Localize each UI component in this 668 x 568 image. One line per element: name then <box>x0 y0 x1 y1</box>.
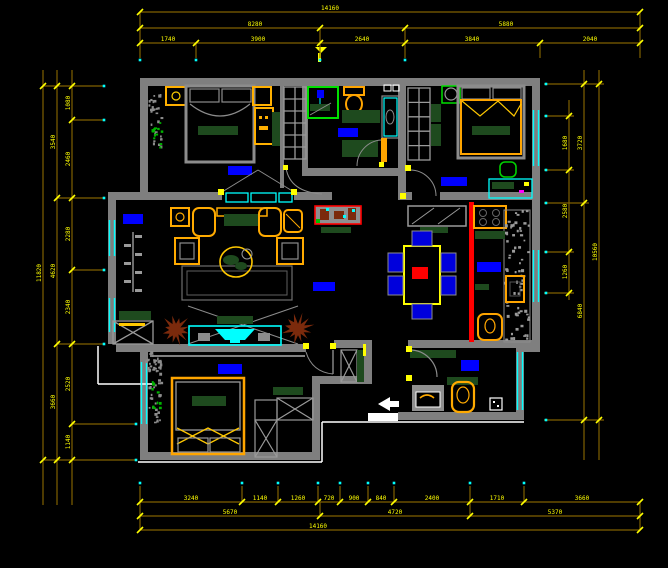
kitchen-counter <box>517 230 519 233</box>
armchair-line <box>286 214 300 228</box>
kitchen-counter <box>512 250 515 253</box>
wall-decor <box>148 104 150 106</box>
label-bedroom1 <box>228 166 252 175</box>
sideboard-line <box>438 208 460 224</box>
dim-dot <box>545 169 548 172</box>
label-bedroom2 <box>441 177 467 186</box>
kitchen-counter <box>522 210 524 213</box>
dim-text: 3720 <box>577 135 584 150</box>
kitchen-counter <box>506 232 508 235</box>
plant-decor <box>157 128 160 130</box>
dim-text: 5670 <box>223 509 238 516</box>
cabinet-green <box>431 124 441 146</box>
column <box>148 359 150 361</box>
wall-decor <box>149 100 151 103</box>
vanity-counter <box>342 110 380 123</box>
soundbar <box>217 316 253 324</box>
dim-dot <box>103 343 106 346</box>
desk-item-magenta <box>519 190 524 193</box>
wall-hall-bottom <box>334 340 372 348</box>
wall-decor <box>160 135 162 137</box>
kitchen-counter <box>523 335 526 337</box>
sideboard <box>279 193 292 202</box>
dim-text: 2280 <box>65 226 72 241</box>
headboard-panel <box>222 89 251 102</box>
dim-text: 3540 <box>50 134 57 149</box>
kitchen-counter <box>526 314 528 316</box>
door-hinge <box>218 189 224 195</box>
side-table-top <box>180 243 194 259</box>
wall-decor <box>158 360 161 363</box>
door-hinge <box>406 375 412 381</box>
dim-text: 5370 <box>548 509 563 516</box>
wall-decor <box>152 109 154 111</box>
column <box>150 365 152 367</box>
appliance-dial <box>485 319 495 333</box>
dim-dot <box>139 482 142 485</box>
wall-decor <box>158 107 160 109</box>
wall-decor <box>160 117 163 119</box>
dim-dot <box>545 419 548 422</box>
dining-chair <box>412 304 432 319</box>
plant-decor <box>159 407 162 409</box>
dim-text: 1680 <box>562 135 569 150</box>
headboard-panel <box>462 88 490 99</box>
door-hinge <box>330 343 336 349</box>
dim-text: 2040 <box>583 36 598 43</box>
wardrobe-box <box>255 400 277 420</box>
bed2 <box>458 86 524 158</box>
wall-decor <box>158 394 161 397</box>
dim-dot <box>103 119 106 122</box>
dim-text: 14160 <box>321 5 339 12</box>
toilet-tank <box>344 87 364 95</box>
door-hinge <box>379 162 384 167</box>
kitchen-counter <box>523 222 526 224</box>
plant-decor <box>159 146 161 148</box>
dim-dot <box>135 459 138 462</box>
label-bathroom <box>338 128 358 137</box>
dining-chair <box>388 276 403 295</box>
dim-text: 2460 <box>65 151 72 166</box>
plant <box>282 313 314 344</box>
burner <box>480 219 487 226</box>
wall-decor <box>156 416 159 418</box>
dim-dot <box>523 482 526 485</box>
column <box>152 369 155 371</box>
dim-text: 1740 <box>161 36 176 43</box>
wall-decor <box>159 373 162 376</box>
cad-floor-plan: 1416082805880174039002640384020403240114… <box>0 0 668 568</box>
wall-decor <box>155 402 157 404</box>
speaker <box>258 333 270 341</box>
door-leaf <box>381 138 387 162</box>
door-swing <box>258 170 294 192</box>
kitchen-counter <box>518 312 521 314</box>
dim-text: 4620 <box>50 263 57 278</box>
kitchen-counter <box>525 310 527 312</box>
drain-dot <box>497 405 499 407</box>
kitchen-counter <box>526 334 528 337</box>
dim-dot <box>545 251 548 254</box>
kitchen-counter <box>526 337 528 339</box>
plant-decor <box>154 134 156 136</box>
drain-dot <box>493 401 495 403</box>
dining-chair <box>441 276 456 295</box>
dim-dot <box>545 202 548 205</box>
column <box>155 363 157 365</box>
wall-decor <box>156 108 158 110</box>
wall-decor <box>150 386 152 389</box>
dim-dot <box>545 292 548 295</box>
dining-chair <box>441 253 456 272</box>
sofa-scroll <box>176 213 184 221</box>
cabinet-dot <box>352 209 355 212</box>
dim-text: 8280 <box>248 21 263 28</box>
dim-dot <box>317 482 320 485</box>
label-kitchen <box>477 262 501 272</box>
cabinet-dot <box>326 208 329 211</box>
kitchen-counter <box>516 328 519 331</box>
dresser-knob <box>259 126 268 130</box>
dim-dot <box>319 59 322 62</box>
wall-bed2-bottom <box>440 192 540 200</box>
wall-decor <box>153 142 155 145</box>
kitchen-counter <box>505 225 508 227</box>
side-table <box>277 238 303 264</box>
wall-decor <box>158 94 161 97</box>
kitchen-counter <box>505 339 508 341</box>
wall-tree-decor <box>124 262 131 265</box>
chair-cushion <box>457 387 469 403</box>
column <box>152 355 154 357</box>
label-hall <box>313 282 335 291</box>
burner <box>493 219 500 226</box>
basin <box>386 110 394 124</box>
column <box>149 353 152 355</box>
wall-decor <box>153 95 155 97</box>
dim-text: 5880 <box>499 21 514 28</box>
door-arc <box>306 352 333 374</box>
dim-text: 3660 <box>50 394 57 409</box>
wall-decor <box>153 361 155 363</box>
kitchen-counter <box>513 224 515 227</box>
sofa-arm <box>193 208 215 236</box>
dim-dot <box>545 83 548 86</box>
wall-entry-bottom <box>398 412 524 420</box>
dim-dot <box>103 197 106 200</box>
wall-decor <box>159 419 161 421</box>
door-hinge <box>291 189 297 195</box>
dim-dot <box>277 482 280 485</box>
dim-dot <box>241 482 244 485</box>
kitchen-counter <box>518 270 520 272</box>
sofa-cushions <box>224 214 260 226</box>
lamp <box>172 92 180 100</box>
kitchen-counter <box>527 318 530 320</box>
dim-text: 840 <box>376 495 387 502</box>
plant-decor <box>157 402 159 405</box>
dining-chair <box>412 231 432 246</box>
bed1 <box>186 86 254 162</box>
dim-text: 3900 <box>251 36 266 43</box>
column <box>149 363 151 365</box>
wall-decor <box>157 411 160 414</box>
kitchen-counter <box>510 337 513 340</box>
entrance-arrow <box>378 397 399 411</box>
wall-tree-decor <box>135 235 142 238</box>
column <box>153 367 155 369</box>
wall-tree-decor <box>135 271 142 274</box>
plant-decor <box>161 130 164 132</box>
wall-decor <box>150 397 152 399</box>
dining-chair <box>388 253 403 272</box>
closet-green <box>357 350 364 382</box>
wall-decor <box>153 140 155 142</box>
wall-tree-decor <box>135 253 142 256</box>
kitchen-counter <box>513 292 515 295</box>
dining-sideboard <box>408 206 466 226</box>
table-mat <box>412 267 428 279</box>
wall-living-top-left <box>140 192 222 200</box>
kitchen-counter <box>517 214 520 216</box>
pillow <box>472 126 510 135</box>
dim-text: 2640 <box>355 36 370 43</box>
wall-decor <box>149 407 151 409</box>
wall-tree-decor <box>124 244 131 247</box>
label-entry <box>461 360 479 371</box>
dim-text: 1260 <box>291 495 306 502</box>
speaker <box>198 333 210 341</box>
blanket <box>198 126 238 135</box>
column <box>147 367 150 370</box>
wall-decor <box>156 112 159 114</box>
cabinet-item <box>334 211 344 219</box>
door-hinge <box>400 193 406 199</box>
dim-text: 1140 <box>65 434 72 449</box>
door-hinge <box>283 165 288 170</box>
dim-dot <box>469 482 472 485</box>
dim-text: 1140 <box>253 495 268 502</box>
dim-text: 720 <box>324 495 335 502</box>
label-bedroom3 <box>218 364 242 374</box>
kitchen-counter <box>527 251 530 253</box>
kitchen-counter <box>507 315 510 318</box>
dim-text: 6840 <box>577 303 584 318</box>
cabinet-green <box>431 104 441 122</box>
dim-text: 3660 <box>575 495 590 502</box>
headboard-panel <box>190 89 219 102</box>
kitchen-counter <box>512 234 515 236</box>
kitchen-counter <box>509 255 511 257</box>
side-table-top <box>282 243 298 259</box>
sofa-arm <box>259 208 281 236</box>
wall-decor <box>151 124 153 126</box>
plant-decor <box>154 407 156 409</box>
nightstand <box>166 87 186 105</box>
wall-decor <box>154 413 157 416</box>
dim-text: 14160 <box>309 523 327 530</box>
wall-decor <box>158 382 161 384</box>
column <box>148 370 150 372</box>
dim-dot <box>139 59 142 62</box>
desk-chair <box>500 162 516 177</box>
plant-decor <box>159 402 162 405</box>
dim-dot <box>135 423 138 426</box>
kitchen-counter <box>519 227 521 230</box>
pillow-line <box>190 104 250 116</box>
dim-text: 2340 <box>65 299 72 314</box>
entrance-mat <box>368 413 398 421</box>
dim-dot <box>339 482 342 485</box>
kitchen-counter <box>516 314 519 316</box>
burner <box>480 210 487 217</box>
plant-decor <box>152 381 154 383</box>
appliance <box>478 314 502 340</box>
dim-dot <box>195 59 198 62</box>
floor-drain <box>490 398 502 410</box>
door-frame-mark <box>363 344 366 356</box>
dim-text: 11820 <box>36 264 43 282</box>
pillow <box>192 396 226 406</box>
rug-inner <box>187 271 287 295</box>
wall-bath-bottom <box>306 168 400 176</box>
column <box>145 360 147 363</box>
dim-text: 2520 <box>65 376 72 391</box>
dim-text: 1260 <box>562 264 569 279</box>
kitchen-counter <box>524 240 526 242</box>
dim-text: 2400 <box>425 495 440 502</box>
door-arc <box>410 170 436 196</box>
wall-decor <box>161 382 164 384</box>
door-hinge <box>303 343 309 349</box>
kitchen-counter <box>521 259 523 261</box>
dim-text: 1080 <box>65 95 72 110</box>
wall-decor <box>158 379 161 381</box>
wall-decor <box>160 367 162 370</box>
dim-dot <box>404 59 407 62</box>
dim-text: 3840 <box>465 36 480 43</box>
kitchen-counter <box>515 212 517 214</box>
kitchen-counter <box>518 246 521 249</box>
sideboard-line <box>412 208 434 224</box>
cabinet-dot <box>343 215 346 218</box>
bed-drawer <box>178 438 208 452</box>
kitchen-counter <box>515 271 517 273</box>
door-hinge <box>405 165 411 171</box>
kitchen-counter <box>506 305 509 307</box>
plant-decor <box>160 143 163 145</box>
door-hinge <box>406 346 412 352</box>
kitchen-counter <box>528 225 530 227</box>
wall-tree-decor <box>135 289 142 292</box>
kitchen-counter <box>506 269 509 272</box>
kitchen-counter <box>528 316 530 318</box>
column <box>157 358 159 361</box>
kitchen-counter <box>520 325 523 327</box>
dim-text: 10560 <box>592 243 599 261</box>
kitchen-counter <box>514 221 517 224</box>
cabinet-green <box>272 112 280 146</box>
plant-decor <box>152 129 154 132</box>
washer-trim <box>119 323 145 326</box>
tv-base <box>230 338 240 343</box>
level-marker <box>315 47 327 53</box>
kitchen-counter <box>508 257 510 259</box>
wall-decor <box>151 394 153 396</box>
kitchen-counter <box>508 221 511 223</box>
dim-dot <box>103 269 106 272</box>
plant-decor <box>151 388 153 391</box>
cabinet-dot <box>316 219 320 223</box>
kitchen-counter <box>511 333 513 335</box>
dim-text: 4720 <box>388 509 403 516</box>
plant-leaf <box>235 262 247 270</box>
plant-decor <box>153 137 155 139</box>
sideboard <box>226 193 248 202</box>
shower-head <box>317 90 324 98</box>
kitchen-counter <box>513 337 515 340</box>
plant <box>163 316 189 346</box>
dim-text: 3240 <box>184 495 199 502</box>
wall-decor <box>160 138 162 140</box>
dim-text: 2580 <box>562 203 569 218</box>
desk-item-green <box>492 182 514 189</box>
counter-green <box>475 231 505 239</box>
fan-motor <box>445 88 457 100</box>
wall-tree-decor <box>124 280 131 283</box>
burner <box>493 210 500 217</box>
dim-dot <box>393 482 396 485</box>
dresser-knob <box>259 116 262 119</box>
dim-dot <box>545 115 548 118</box>
plant-decor <box>159 122 161 124</box>
dim-text: 900 <box>349 495 360 502</box>
kitchen-counter <box>514 247 516 250</box>
dim-dot <box>367 482 370 485</box>
side-table <box>175 238 199 264</box>
wall-decor <box>153 100 155 103</box>
kitchen-counter <box>519 262 521 264</box>
wall-decor <box>157 419 159 421</box>
wall-left-upper <box>140 86 148 196</box>
wall-decor <box>155 131 158 133</box>
wardrobe-green <box>273 387 303 395</box>
dim-text: 1710 <box>490 495 505 502</box>
desk-item-yellow <box>524 182 529 186</box>
nightstand <box>253 87 271 105</box>
sofa-corner <box>171 208 189 226</box>
dresser-knob <box>265 116 268 119</box>
planter <box>119 311 151 320</box>
sideboard <box>251 193 276 202</box>
kitchen-counter <box>510 226 512 229</box>
kitchen-counter <box>517 307 519 309</box>
column <box>156 370 158 372</box>
label-living <box>123 214 143 224</box>
headboard-panel <box>493 88 521 99</box>
kitchen-counter <box>519 230 522 232</box>
kitchen-counter <box>520 234 523 236</box>
counter-green <box>475 284 489 290</box>
kitchen-counter <box>526 210 529 212</box>
cabinet-green <box>321 227 351 233</box>
drawing-canvas[interactable]: 1416082805880174039002640384020403240114… <box>0 0 668 568</box>
blanket-fold <box>462 101 521 116</box>
dim-dot <box>103 85 106 88</box>
plant-decor <box>157 391 160 393</box>
kitchen-counter <box>506 240 509 242</box>
